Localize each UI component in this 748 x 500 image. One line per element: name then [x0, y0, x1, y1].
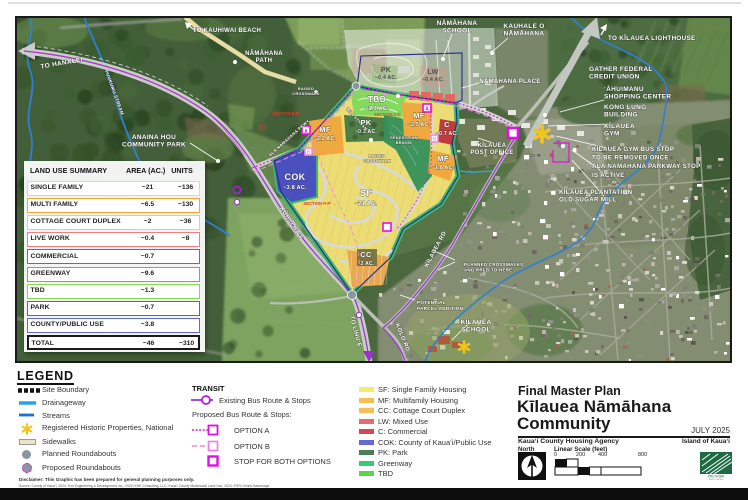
- svg-text:~1.8 AC.: ~1.8 AC.: [432, 165, 454, 171]
- svg-text:LW: LW: [427, 69, 438, 76]
- svg-text:~1.3 AC.: ~1.3 AC.: [365, 106, 389, 112]
- svg-text:800: 800: [638, 452, 647, 458]
- svg-text:SECTION 2-2' →: SECTION 2-2' →: [374, 112, 406, 117]
- svg-text:~0.3 AC.: ~0.3 AC.: [355, 129, 377, 135]
- svg-text:SF: SF: [360, 188, 372, 198]
- svg-text:MF: MF: [319, 125, 331, 134]
- svg-text:~2.2 AC.: ~2.2 AC.: [314, 136, 336, 142]
- svg-text:PK: PK: [381, 67, 391, 74]
- svg-text:~2.5 AC.: ~2.5 AC.: [408, 122, 430, 128]
- svg-text:NĀMĀHANASCHOOL: NĀMĀHANASCHOOL: [437, 19, 478, 35]
- svg-text:CC: CC: [360, 250, 372, 259]
- svg-text:~21 AC.: ~21 AC.: [355, 201, 377, 207]
- svg-text:~0.7 AC.: ~0.7 AC.: [436, 131, 458, 137]
- svg-text:TBD: TBD: [368, 94, 386, 104]
- svg-text:SECTION P-P' →: SECTION P-P' →: [303, 201, 336, 206]
- svg-text:KAUHALE ONĀMĀHANA: KAUHALE ONĀMĀHANA: [503, 23, 544, 38]
- svg-text:NĀMĀHANA PLACE: NĀMĀHANA PLACE: [479, 78, 540, 85]
- svg-text:A: A: [304, 129, 308, 135]
- svg-text:ASSOCIATES: ASSOCIATES: [709, 478, 723, 480]
- svg-text:200: 200: [576, 452, 585, 458]
- svg-text:PK: PK: [360, 118, 371, 127]
- svg-text:MF: MF: [437, 154, 449, 163]
- svg-text:MF: MF: [413, 111, 425, 120]
- svg-text:COK: COK: [285, 172, 306, 182]
- svg-text:~3.8 AC.: ~3.8 AC.: [283, 185, 307, 191]
- svg-text:~0.4 AC.: ~0.4 AC.: [375, 75, 397, 81]
- svg-text:0: 0: [554, 452, 557, 458]
- svg-text:A: A: [425, 107, 429, 113]
- svg-text:TO KAUHIWAI BEACH: TO KAUHIWAI BEACH: [193, 28, 261, 34]
- svg-text:400: 400: [598, 452, 607, 458]
- svg-text:PRU IKWAI: PRU IKWAI: [708, 475, 725, 479]
- svg-text:~2 AC.: ~2 AC.: [357, 261, 375, 267]
- svg-text:C: C: [444, 120, 450, 129]
- svg-text:TO KĪLAUEA LIGHTHOUSE: TO KĪLAUEA LIGHTHOUSE: [608, 34, 695, 42]
- svg-text:KĪLAUEASCHOOL: KĪLAUEASCHOOL: [461, 318, 492, 334]
- svg-text:~0.4 AC.: ~0.4 AC.: [422, 77, 444, 83]
- svg-text:SECTION B-B': SECTION B-B': [272, 111, 300, 116]
